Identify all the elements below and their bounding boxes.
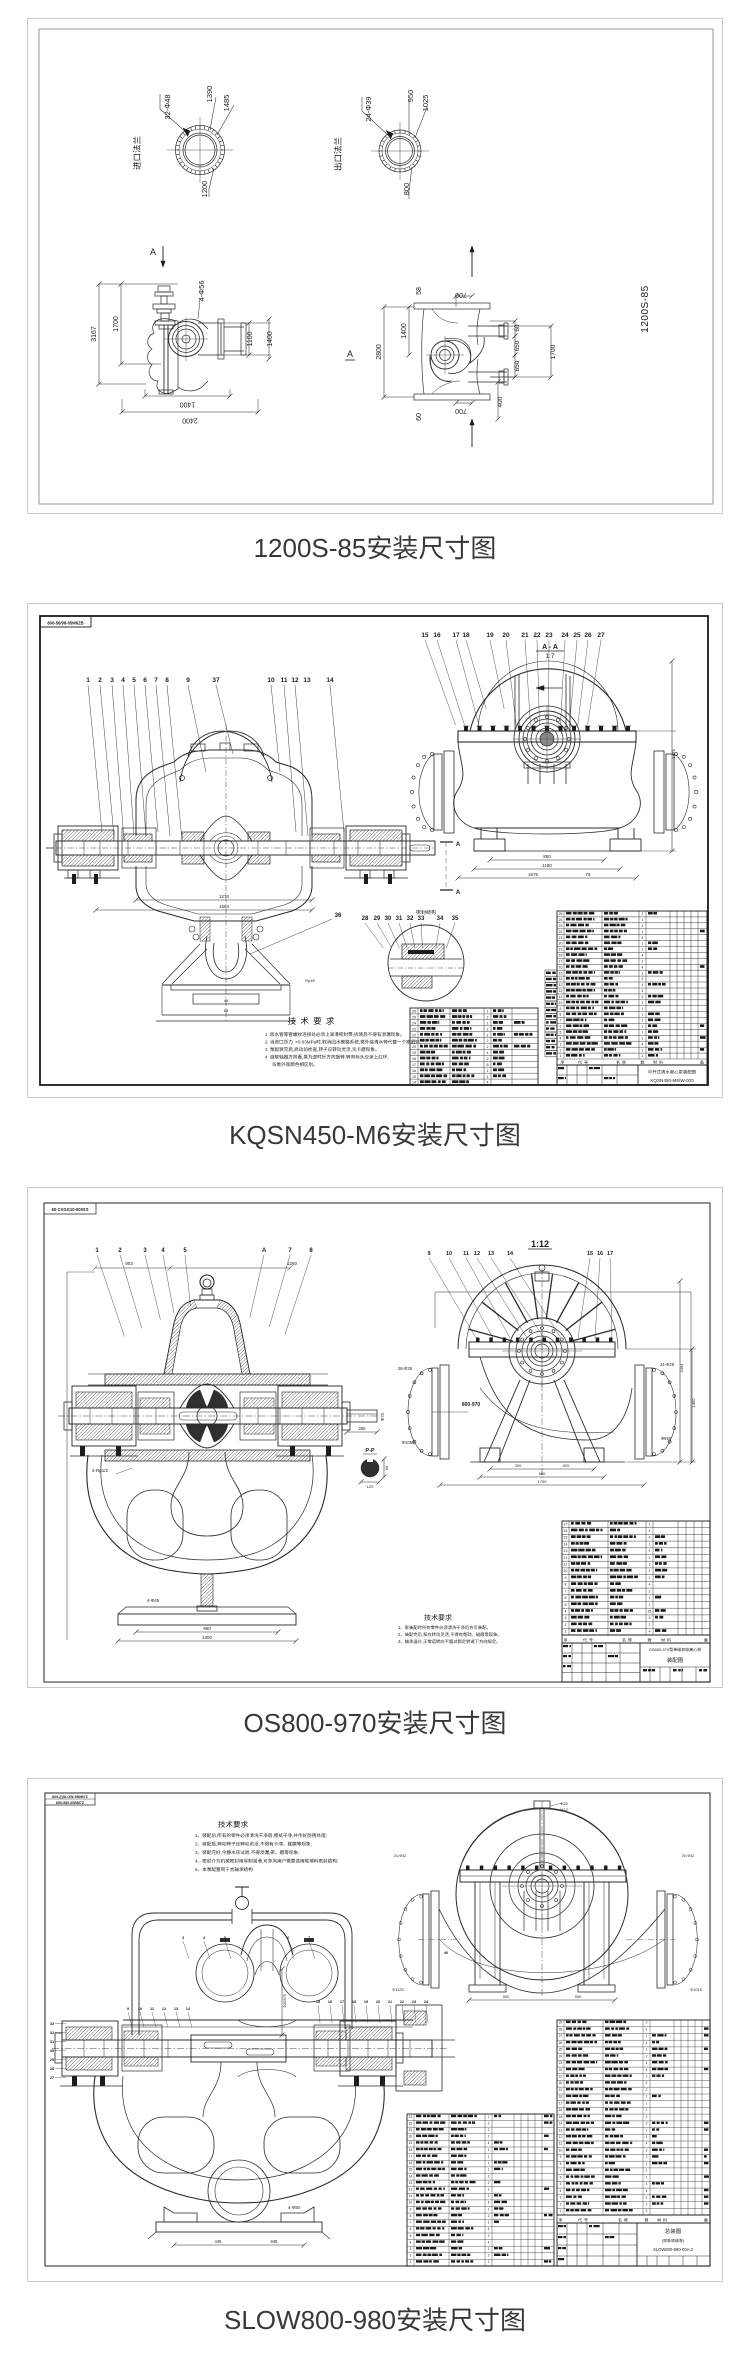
svg-text:2: 2 [565,1623,567,1627]
svg-text:1: 1 [565,1630,567,1634]
svg-text:18: 18 [412,1057,416,1061]
svg-text:18: 18 [409,2148,413,2152]
svg-text:17: 17 [607,1251,613,1257]
svg-text:17: 17 [340,2000,344,2004]
svg-text:2: 2 [488,2181,490,2185]
svg-text:SLOW800-980-00A.2: SLOW800-980-00A.2 [653,2247,694,2252]
svg-text:5: 5 [224,1936,226,1940]
svg-text:4: 4 [161,1248,165,1254]
svg-text:9: 9 [410,2207,412,2211]
svg-text:3: 3 [560,1042,562,1046]
svg-text:4: 4 [487,1081,489,1085]
svg-text:,: , [345,1055,346,1060]
svg-text:1: 1 [487,1027,489,1031]
svg-text:11: 11 [559,995,563,999]
svg-text:23: 23 [409,2115,413,2119]
svg-text:24: 24 [412,1021,416,1025]
svg-text:2: 2 [195,1842,198,1847]
svg-text:22: 22 [412,1033,416,1037]
svg-text:1: 1 [642,1001,644,1005]
svg-text:17: 17 [559,2101,563,2105]
svg-text:76: 76 [585,872,591,877]
svg-text:1400: 1400 [401,323,408,339]
svg-text:1: 1 [649,1576,651,1580]
svg-text:13: 13 [409,2181,413,2185]
svg-text:22: 22 [400,2000,404,2004]
svg-text:13: 13 [303,677,311,684]
svg-text:14: 14 [326,677,334,684]
svg-text:Φ1015: Φ1015 [690,1988,701,1992]
svg-text:2: 2 [642,1031,644,1035]
svg-text:16: 16 [597,1251,603,1257]
svg-text:15: 15 [559,971,563,975]
svg-text:2: 2 [398,1632,401,1637]
svg-text:26: 26 [412,1010,416,1014]
svg-text:1: 1 [195,1833,198,1838]
svg-text:P-P: P-P [365,1448,375,1454]
svg-text:4: 4 [565,1610,567,1614]
svg-text:,: , [272,1833,273,1838]
svg-text:4: 4 [488,2227,490,2231]
svg-text:2: 2 [410,2254,412,2258]
svg-text:15: 15 [409,2168,413,2172]
svg-text:19: 19 [559,948,563,952]
svg-text:10: 10 [559,1001,563,1005]
svg-text:Rp45: Rp45 [305,978,315,983]
svg-text:19: 19 [364,2000,368,2004]
svg-text:1: 1 [646,2169,648,2173]
svg-text:2: 2 [560,1048,562,1052]
svg-text:20: 20 [409,2135,413,2139]
svg-text:2: 2 [646,2149,648,2153]
svg-text:3: 3 [182,1936,184,1940]
svg-text:4: 4 [560,1036,562,1040]
svg-text:,: , [422,1639,423,1644]
svg-text:9: 9 [560,2155,562,2159]
svg-text:5: 5 [560,2182,562,2186]
svg-text:5: 5 [195,1867,198,1872]
svg-text:4-Φ50: 4-Φ50 [288,2205,300,2210]
svg-text:1485: 1485 [222,95,231,112]
svg-text:1: 1 [488,2148,490,2152]
svg-text:10: 10 [409,2201,413,2205]
svg-text:4: 4 [203,1936,206,1940]
svg-text:23: 23 [412,2000,416,2004]
svg-text:1: 1 [487,1033,489,1037]
svg-text:3: 3 [398,1639,401,1644]
svg-text:4: 4 [649,1529,651,1533]
svg-text:920: 920 [563,1463,570,1468]
svg-text:12: 12 [564,1556,568,1560]
svg-text:850: 850 [543,854,551,859]
svg-text:1675: 1675 [528,872,539,877]
svg-text:Φ25: Φ25 [560,1802,567,1806]
svg-text:1: 1 [487,1069,489,1073]
svg-text:1260: 1260 [287,1261,298,1266]
svg-text:14: 14 [412,1081,416,1085]
svg-text:,: , [387,1055,388,1060]
svg-text:14: 14 [559,2122,563,2126]
svg-text:28-Φ35: 28-Φ35 [398,1366,413,1371]
svg-text:Φ1125: Φ1125 [392,1988,403,1992]
svg-text:4-Φ45: 4-Φ45 [147,1598,160,1603]
svg-text:1: 1 [649,1603,651,1607]
svg-text:960: 960 [203,1626,211,1631]
svg-text:2: 2 [642,995,644,999]
svg-text:10: 10 [446,1251,452,1257]
svg-text:33: 33 [50,2022,54,2026]
svg-text:OS800-970: OS800-970 [649,1647,670,1652]
svg-text:1: 1 [488,2188,490,2192]
svg-text:800: 800 [402,183,411,196]
svg-text:23: 23 [559,924,563,928]
svg-text:21: 21 [521,632,529,639]
svg-text:950: 950 [406,90,415,103]
svg-text:5: 5 [132,677,136,684]
svg-text:2800: 2800 [376,344,383,360]
svg-text:12: 12 [291,677,299,684]
svg-text:26: 26 [584,632,592,639]
svg-text:2: 2 [487,1045,489,1049]
svg-text:7: 7 [560,2169,562,2173]
svg-text:23: 23 [412,1027,416,1031]
svg-text:9: 9 [127,2007,129,2011]
svg-text:13: 13 [488,1251,494,1257]
svg-text:17: 17 [564,1522,568,1526]
svg-text:26: 26 [559,2041,563,2045]
svg-text:1: 1 [642,1007,644,1011]
svg-text:2: 2 [649,1589,651,1593]
svg-text:A: A [456,890,461,896]
svg-text:1: 1 [649,1542,651,1546]
svg-text:2: 2 [642,960,644,964]
svg-text:6: 6 [487,1063,489,1067]
svg-text:1: 1 [265,1032,268,1037]
svg-text:15: 15 [564,1536,568,1540]
svg-text:14: 14 [186,2007,191,2011]
svg-text:4: 4 [642,965,644,969]
svg-text:800-(I)SLOW-980M7Z: 800-(I)SLOW-980M7Z [52,1795,88,1799]
svg-text:800-970: 800-970 [462,1402,481,1408]
svg-text:1: 1 [642,1036,644,1040]
svg-text:2: 2 [646,2155,648,2159]
svg-text:25: 25 [412,1016,416,1020]
svg-text:4: 4 [488,2240,490,2244]
svg-text:): ) [683,2238,685,2243]
svg-text:1: 1 [642,942,644,946]
svg-text:,: , [321,1040,322,1045]
svg-text:4: 4 [649,1630,651,1634]
svg-text:4: 4 [642,954,644,958]
svg-text:1300: 1300 [202,1635,213,1640]
svg-text:10: 10 [267,677,275,684]
svg-text:1: 1 [646,2048,648,2052]
svg-text:21: 21 [559,2075,563,2079]
svg-text:24: 24 [561,632,569,639]
svg-text:27: 27 [597,632,605,639]
svg-text:1475: 1475 [671,748,676,759]
svg-text:16: 16 [412,1069,416,1073]
svg-text:1400: 1400 [267,331,274,347]
svg-text:KQSN450-M6: KQSN450-M6 [229,1120,391,1150]
svg-text:14: 14 [564,1542,568,1546]
svg-text:650: 650 [514,340,521,351]
svg-text:32: 32 [407,916,414,922]
svg-text:23: 23 [545,632,553,639]
svg-text:4: 4 [487,1051,489,1055]
svg-text:16: 16 [559,2108,563,2112]
svg-text:2: 2 [118,1248,122,1254]
svg-text:19: 19 [409,2141,413,2145]
svg-text:3: 3 [410,2247,412,2251]
svg-text:2: 2 [646,2209,648,2213]
svg-text:,: , [422,1632,423,1637]
svg-text:800-56/98-05M6ZB: 800-56/98-05M6ZB [47,621,83,626]
svg-text:2: 2 [98,677,102,684]
svg-text:2: 2 [649,1569,651,1573]
svg-text:16: 16 [559,965,563,969]
svg-text:22: 22 [559,930,563,934]
svg-text:,: , [259,1842,260,1847]
svg-text:14: 14 [409,2174,413,2178]
svg-text:1: 1 [649,1549,651,1553]
svg-text:945: 945 [271,2239,279,2244]
svg-text:7: 7 [410,2221,412,2225]
svg-text:8: 8 [309,1248,313,1254]
svg-text:1: 1 [95,1248,99,1254]
svg-text:2: 2 [642,977,644,981]
svg-text:21: 21 [412,1039,416,1043]
svg-text:4: 4 [410,2240,412,2244]
svg-text:2: 2 [487,1039,489,1043]
svg-text:A - A: A - A [542,644,558,651]
svg-text:900: 900 [503,1994,510,1999]
svg-text:15: 15 [559,2115,563,2119]
svg-text:;: ; [337,1859,338,1864]
svg-text:25: 25 [559,912,563,916]
svg-text:,: , [317,1047,318,1052]
svg-text:19: 19 [559,2088,563,2092]
svg-text:,: , [293,1047,294,1052]
svg-text:;: ; [298,1850,299,1855]
svg-text:10: 10 [564,1569,568,1573]
svg-text:1: 1 [649,1522,651,1526]
svg-text:3: 3 [265,1047,268,1052]
svg-text:1:7: 1:7 [545,653,554,660]
svg-text:1: 1 [488,2161,490,2165]
svg-text:80: 80 [384,1465,389,1470]
svg-text:24: 24 [559,2054,563,2058]
svg-text:4: 4 [195,1859,198,1864]
svg-text:28: 28 [559,2027,563,2031]
svg-text:3167: 3167 [91,326,98,342]
svg-text:4: 4 [488,2141,490,2145]
svg-text:2400: 2400 [182,417,198,424]
svg-text:1: 1 [642,948,644,952]
svg-text:24: 24 [424,2000,429,2004]
svg-text:6: 6 [560,2175,562,2179]
svg-text:Φ30/978: Φ30/978 [283,1994,287,2008]
svg-text:8: 8 [560,2162,562,2166]
svg-text:120: 120 [367,1484,374,1489]
svg-text:15: 15 [421,632,429,639]
svg-text:1200: 1200 [200,181,209,198]
svg-text:,: , [216,1842,217,1847]
svg-text:14: 14 [507,1251,514,1257]
svg-text:11: 11 [559,2142,563,2146]
svg-text:4: 4 [642,983,644,987]
svg-text:,: , [249,1850,250,1855]
svg-text:4: 4 [265,1055,268,1060]
svg-text:,: , [269,1850,270,1855]
svg-text:8: 8 [565,1583,567,1587]
svg-text:7: 7 [560,1019,562,1023]
svg-text:14: 14 [559,977,563,981]
svg-text:2: 2 [487,1016,489,1020]
svg-text:12: 12 [559,989,563,993]
svg-text:23: 23 [559,2061,563,2065]
svg-text:1: 1 [642,930,644,934]
svg-text:445: 445 [215,2239,223,2244]
svg-text:18: 18 [559,2095,563,2099]
svg-text:,: , [302,1055,303,1060]
svg-text:4: 4 [642,989,644,993]
svg-text:15: 15 [587,1251,593,1257]
svg-text:1: 1 [488,2221,490,2225]
svg-text:19: 19 [412,1051,416,1055]
svg-text:1025: 1025 [421,95,430,112]
svg-text:2: 2 [646,2088,648,2092]
svg-text:9: 9 [427,1251,430,1257]
svg-text:26: 26 [648,1610,652,1614]
svg-text:21: 21 [409,2128,413,2132]
svg-text:7: 7 [154,677,158,684]
svg-text:265: 265 [359,1426,367,1431]
svg-text:4: 4 [646,2189,648,2193]
svg-text:11: 11 [150,2007,154,2011]
svg-text:4: 4 [560,2189,562,2193]
svg-text:2: 2 [646,2021,648,2025]
svg-text:36: 36 [335,913,342,919]
svg-text:3: 3 [195,1850,198,1855]
svg-text:25: 25 [559,2048,563,2052]
svg-text:17: 17 [452,632,460,639]
svg-text:2: 2 [488,2135,490,2139]
svg-text:Φ950: Φ950 [661,1436,672,1441]
svg-text:16: 16 [409,2161,413,2165]
svg-text:1270: 1270 [219,894,230,899]
svg-text:31: 31 [396,916,403,922]
svg-text:31: 31 [50,2040,54,2044]
svg-text:8: 8 [410,2214,412,2218]
svg-text:27: 27 [50,2076,54,2080]
svg-text:;: ; [326,1833,327,1838]
svg-text:18: 18 [462,632,470,639]
svg-text:11: 11 [463,1251,469,1257]
svg-text:20: 20 [502,632,510,639]
svg-text:10: 10 [138,2007,142,2011]
svg-text:900: 900 [575,1994,582,1999]
svg-text:4: 4 [121,677,125,684]
svg-text:8: 8 [560,1013,562,1017]
svg-text:13: 13 [559,2128,563,2132]
svg-text:2: 2 [488,2128,490,2132]
svg-text:650: 650 [514,360,521,371]
svg-text:27: 27 [559,2034,563,2038]
svg-text:1: 1 [560,2209,562,2213]
svg-text:3: 3 [143,1248,147,1254]
svg-text:18: 18 [559,954,563,958]
svg-text:5: 5 [565,1603,567,1607]
svg-text:9: 9 [186,677,190,684]
svg-text:6: 6 [287,1936,289,1940]
svg-text:1: 1 [86,677,90,684]
svg-text:1: 1 [646,2182,648,2186]
svg-text:2: 2 [560,2202,562,2206]
svg-text:2-Rp1/2: 2-Rp1/2 [92,1468,109,1473]
svg-text:6: 6 [410,2227,412,2231]
svg-text:2: 2 [646,2054,648,2058]
svg-text:25: 25 [573,632,581,639]
svg-text:4: 4 [649,1536,651,1540]
svg-text:,: , [353,1032,354,1037]
svg-text:6: 6 [565,1596,567,1600]
svg-text:,: , [359,1040,360,1045]
svg-text:2464: 2464 [679,1363,684,1373]
svg-text:5: 5 [183,1248,187,1254]
svg-text:37: 37 [212,677,220,684]
svg-text:12: 12 [409,2188,413,2192]
svg-text:903: 903 [125,1261,133,1266]
svg-text:28: 28 [362,916,369,922]
svg-text:1: 1 [649,1563,651,1567]
svg-text:4: 4 [646,2041,648,2045]
svg-text:22: 22 [409,2121,413,2125]
svg-text:1100: 1100 [247,331,254,346]
svg-text:9: 9 [560,1007,562,1011]
svg-text:980: 980 [539,1471,546,1476]
svg-text:1200S-85: 1200S-85 [254,533,367,563]
svg-text:4: 4 [646,2061,648,2065]
svg-text:2: 2 [488,2234,490,2238]
svg-text:12: 12 [162,2007,166,2011]
svg-text:1: 1 [646,2135,648,2139]
svg-text:16: 16 [433,632,441,639]
svg-text:2: 2 [488,2260,490,2264]
svg-text:3: 3 [565,1616,567,1620]
svg-text:1: 1 [646,2162,648,2166]
svg-text:2: 2 [646,2196,648,2200]
svg-text:4: 4 [642,1042,644,1046]
svg-text:29: 29 [50,2058,54,2062]
svg-text:40: 40 [444,1951,448,1955]
svg-text:17: 17 [409,2155,413,2159]
svg-text:800-980-00BM7Z: 800-980-00BM7Z [56,1801,85,1805]
svg-text:4: 4 [642,936,644,940]
svg-text:,: , [351,1047,352,1052]
svg-text:1: 1 [487,1010,489,1014]
svg-text:SLOW800-980: SLOW800-980 [224,2305,396,2335]
svg-text:1:12: 1:12 [531,1239,549,1249]
svg-text:4: 4 [646,2142,648,2146]
svg-text:30: 30 [385,916,392,922]
svg-text:32: 32 [50,2031,54,2035]
svg-text:19: 19 [486,632,494,639]
svg-text:2: 2 [642,1048,644,1052]
svg-text:60-CXGG10-000SS: 60-CXGG10-000SS [51,1207,88,1212]
svg-text:13: 13 [174,2007,178,2011]
svg-text:A: A [150,247,156,257]
